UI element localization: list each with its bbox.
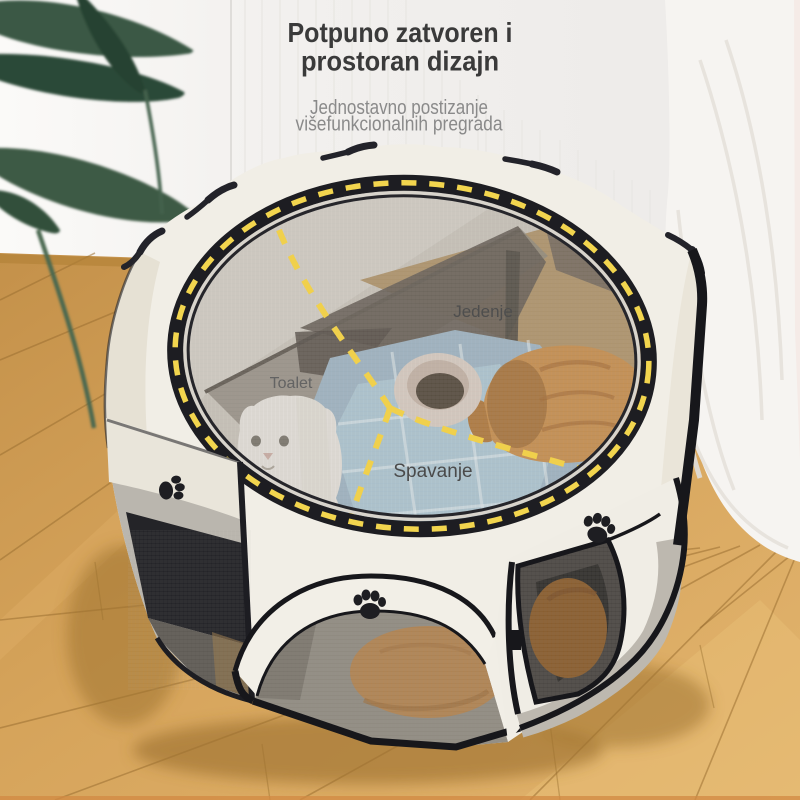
svg-text:Toalet: Toalet	[270, 375, 313, 392]
svg-text:višefunkcionalnih pregrada: višefunkcionalnih pregrada	[296, 114, 504, 136]
svg-text:Potpuno zatvoren i: Potpuno zatvoren i	[288, 17, 513, 48]
svg-text:prostoran dizajn: prostoran dizajn	[301, 46, 499, 77]
svg-text:Spavanje: Spavanje	[393, 461, 472, 482]
svg-text:Jedenje: Jedenje	[453, 302, 513, 321]
